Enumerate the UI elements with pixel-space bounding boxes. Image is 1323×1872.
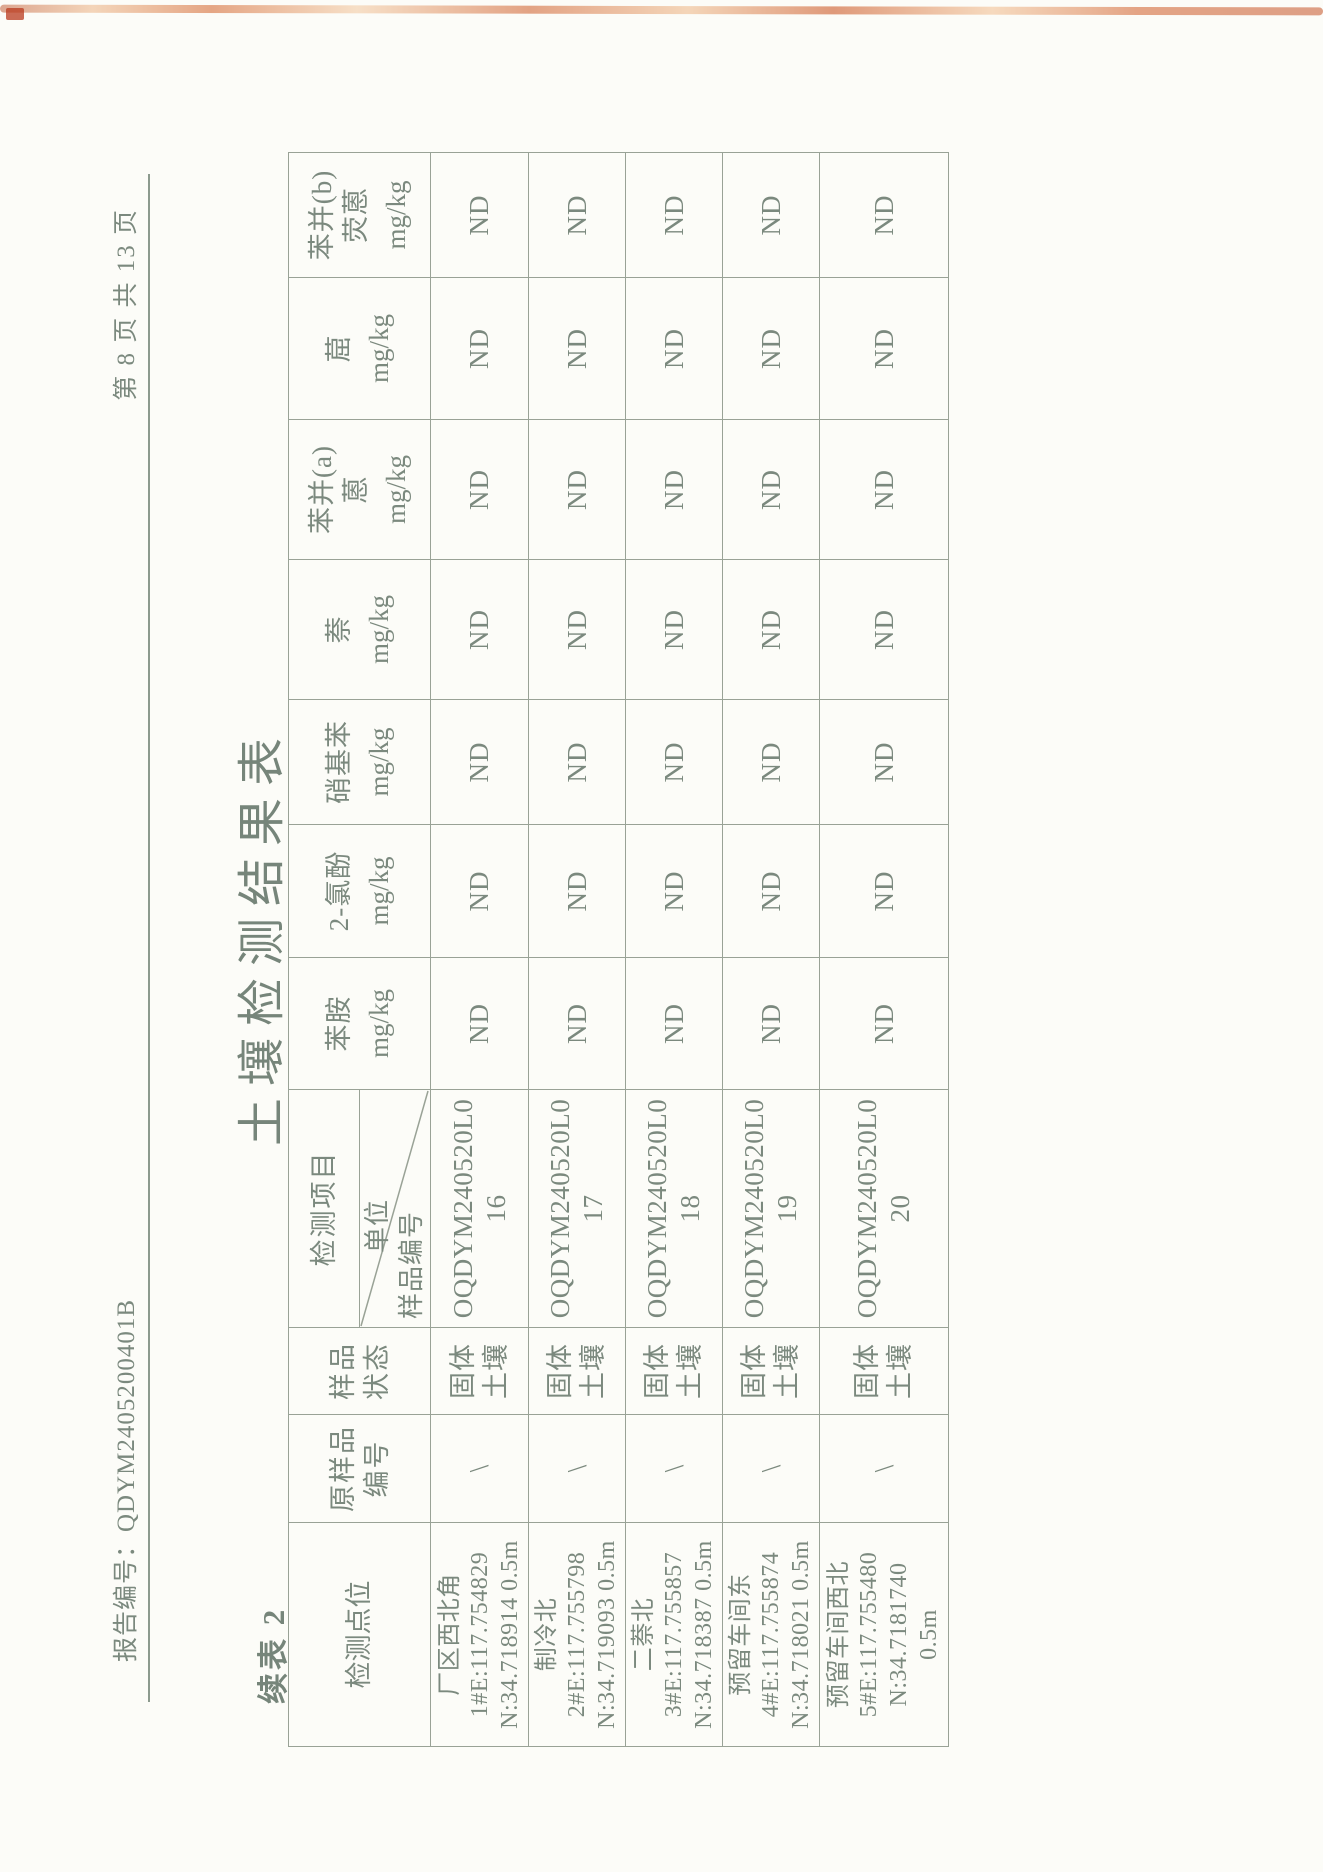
text-line: OQDYM240520L0 — [447, 1090, 480, 1327]
text-line: 18 — [674, 1090, 707, 1327]
table-row: 制冷北 2#E:117.755798 N:34.719093 0.5m \ 固体… — [529, 153, 626, 1747]
cell-value: ND — [723, 153, 820, 278]
unit-label: mg/kg — [373, 153, 421, 277]
text-line: 土壤 — [884, 1328, 917, 1414]
cell-point: 预留车间西北 5#E:117.755480 N:34.7181740 0.5m — [820, 1523, 949, 1747]
text-line: OQDYM240520L0 — [544, 1090, 577, 1327]
cell-value: ND — [626, 958, 723, 1090]
cell-value: ND — [626, 278, 723, 420]
cell-point: 二萘北 3#E:117.755857 N:34.718387 0.5m — [626, 1523, 723, 1747]
unit-label: mg/kg — [373, 420, 421, 559]
text-line: 17 — [577, 1090, 610, 1327]
cell-sample-state: 固体 土壤 — [723, 1328, 820, 1415]
corner-diagonal-area: 单位 样品编号 — [360, 1090, 429, 1327]
text-line: 状态 — [360, 1328, 394, 1414]
cell-value: ND — [626, 560, 723, 700]
scanned-report-page: 报告编号：QDYM2405200401B 第 8 页 共 13 页 土壤检测结果… — [0, 0, 1323, 1872]
text-line: OQDYM240520L0 — [738, 1090, 771, 1327]
col-header-state: 样品 状态 — [289, 1328, 431, 1415]
cell-value: ND — [529, 153, 626, 278]
cell-value: ND — [723, 825, 820, 958]
cell-value: ND — [431, 278, 529, 420]
col-header-2-chlorophenol: 2-氯酚 mg/kg — [289, 825, 431, 958]
cell-sample-state: 固体 土壤 — [529, 1328, 626, 1415]
cell-value: ND — [723, 560, 820, 700]
text-line: 厂区西北角 — [435, 1523, 465, 1746]
table-header-row: 检测点位 原样品 编号 样品 状态 检测项目 — [289, 153, 431, 1747]
text-line: 固体 — [851, 1328, 884, 1414]
text-line: 土壤 — [480, 1328, 513, 1414]
cell-value: ND — [820, 825, 949, 958]
cell-orig-sample-no: \ — [820, 1415, 949, 1523]
unit-label: mg/kg — [356, 278, 404, 419]
cell-value: ND — [529, 420, 626, 560]
text-line: 萘 — [322, 560, 356, 699]
text-line: 硝基苯 — [322, 700, 356, 824]
cell-value: ND — [529, 278, 626, 420]
text-line: 4#E:117.755874 — [756, 1523, 786, 1746]
cell-sample-id: OQDYM240520L0 18 — [626, 1090, 723, 1328]
cell-point: 预留车间东 4#E:117.755874 N:34.718021 0.5m — [723, 1523, 820, 1747]
text-line: 土壤 — [674, 1328, 707, 1414]
cell-sample-state: 固体 土壤 — [431, 1328, 529, 1415]
text-line: 样品 — [326, 1328, 360, 1414]
text-line: 固体 — [447, 1328, 480, 1414]
text-line: 苯胺 — [322, 958, 356, 1089]
text-line: OQDYM240520L0 — [851, 1090, 884, 1327]
text-line: 䓛 — [322, 278, 356, 419]
text-line: 土壤 — [577, 1328, 610, 1414]
text-line: 苯并(a) — [305, 420, 339, 559]
text-line: 二萘北 — [629, 1523, 659, 1746]
cell-value: ND — [723, 700, 820, 825]
cell-orig-sample-no: \ — [431, 1415, 529, 1523]
cell-value: ND — [431, 958, 529, 1090]
cell-sample-id: OQDYM240520L0 16 — [431, 1090, 529, 1328]
cell-value: ND — [723, 420, 820, 560]
rotated-page-content: 报告编号：QDYM2405200401B 第 8 页 共 13 页 土壤检测结果… — [0, 0, 1323, 1872]
text-line: 1#E:117.754829 — [465, 1523, 495, 1746]
text-line: 编号 — [360, 1415, 394, 1522]
col-header-chrysene: 䓛 mg/kg — [289, 278, 431, 420]
text-line: OQDYM240520L0 — [641, 1090, 674, 1327]
corner-sample-no-label: 样品编号 — [397, 1211, 427, 1319]
corner-project-label: 检测项目 — [290, 1090, 360, 1327]
text-line: 固体 — [544, 1328, 577, 1414]
unit-label: mg/kg — [356, 825, 404, 957]
text-line: 预留车间东 — [726, 1523, 756, 1746]
text-line: N:34.719093 0.5m — [592, 1523, 622, 1746]
table-row: 厂区西北角 1#E:117.754829 N:34.718914 0.5m \ … — [431, 153, 529, 1747]
cell-value: ND — [431, 825, 529, 958]
text-line: 固体 — [738, 1328, 771, 1414]
text-line: 制冷北 — [532, 1523, 562, 1746]
text-line: 2-氯酚 — [322, 825, 356, 957]
cell-value: ND — [723, 278, 820, 420]
text-line: 固体 — [641, 1328, 674, 1414]
cell-value: ND — [529, 700, 626, 825]
cell-value: ND — [529, 825, 626, 958]
table-row: 二萘北 3#E:117.755857 N:34.718387 0.5m \ 固体… — [626, 153, 723, 1747]
cell-point: 厂区西北角 1#E:117.754829 N:34.718914 0.5m — [431, 1523, 529, 1747]
cell-value: ND — [431, 560, 529, 700]
text-line: 5#E:117.755480 — [854, 1523, 884, 1746]
text-line: 20 — [884, 1090, 917, 1327]
cell-sample-id: OQDYM240520L0 19 — [723, 1090, 820, 1328]
col-header-orig-sample: 原样品 编号 — [289, 1415, 431, 1523]
col-header-benzo-b-fluoranthene: 苯并(b) 荧蒽 mg/kg — [289, 153, 431, 278]
cell-value: ND — [626, 825, 723, 958]
cell-value: ND — [723, 958, 820, 1090]
text-line: N:34.718914 0.5m — [495, 1523, 525, 1746]
unit-label: mg/kg — [356, 958, 404, 1089]
cell-orig-sample-no: \ — [626, 1415, 723, 1523]
cell-value: ND — [626, 420, 723, 560]
page-title: 土壤检测结果表 — [222, 0, 292, 1872]
header-divider-line — [148, 174, 150, 1702]
text-line: 3#E:117.755857 — [659, 1523, 689, 1746]
text-line: 蒽 — [339, 420, 373, 559]
unit-label: mg/kg — [356, 560, 404, 699]
page-indicator: 第 8 页 共 13 页 — [106, 208, 142, 401]
cell-value: ND — [820, 278, 949, 420]
continuation-label: 续表 2 — [248, 1607, 293, 1704]
cell-value: ND — [820, 700, 949, 825]
text-line: 16 — [480, 1090, 513, 1327]
report-number: 报告编号：QDYM2405200401B — [106, 1299, 142, 1662]
cell-value: ND — [820, 153, 949, 278]
col-header-project-diagonal: 检测项目 单位 样品编号 — [289, 1090, 431, 1328]
cell-sample-state: 固体 土壤 — [820, 1328, 949, 1415]
cell-value: ND — [626, 700, 723, 825]
text-line: N:34.718021 0.5m — [786, 1523, 816, 1746]
col-header-point: 检测点位 — [289, 1523, 431, 1747]
text-line: 土壤 — [771, 1328, 804, 1414]
cell-orig-sample-no: \ — [723, 1415, 820, 1523]
text-line: N:34.7181740 — [884, 1523, 914, 1746]
corner-unit-label: 单位 — [363, 1199, 393, 1253]
unit-label: mg/kg — [356, 700, 404, 824]
cell-sample-id: OQDYM240520L0 17 — [529, 1090, 626, 1328]
cell-orig-sample-no: \ — [529, 1415, 626, 1523]
cell-sample-id: OQDYM240520L0 20 — [820, 1090, 949, 1328]
cell-value: ND — [529, 958, 626, 1090]
text-line: 0.5m — [914, 1523, 944, 1746]
cell-value: ND — [626, 153, 723, 278]
text-line: 预留车间西北 — [824, 1523, 854, 1746]
results-table: 检测点位 原样品 编号 样品 状态 检测项目 — [288, 152, 949, 1747]
cell-value: ND — [820, 420, 949, 560]
text-line: 原样品 — [326, 1415, 360, 1522]
col-header-aniline: 苯胺 mg/kg — [289, 958, 431, 1090]
text-line: N:34.718387 0.5m — [689, 1523, 719, 1746]
col-header-naphthalene: 萘 mg/kg — [289, 560, 431, 700]
cell-value: ND — [431, 153, 529, 278]
text-line: 19 — [771, 1090, 804, 1327]
cell-value: ND — [431, 420, 529, 560]
cell-value: ND — [820, 958, 949, 1090]
col-header-nitrobenzene: 硝基苯 mg/kg — [289, 700, 431, 825]
cell-point: 制冷北 2#E:117.755798 N:34.719093 0.5m — [529, 1523, 626, 1747]
col-header-benzo-a-anthracene: 苯并(a) 蒽 mg/kg — [289, 420, 431, 560]
cell-value: ND — [431, 700, 529, 825]
text-line: 2#E:117.755798 — [562, 1523, 592, 1746]
cell-value: ND — [820, 560, 949, 700]
text-line: 苯并(b) — [305, 153, 339, 277]
table-row: 预留车间西北 5#E:117.755480 N:34.7181740 0.5m … — [820, 153, 949, 1747]
cell-value: ND — [529, 560, 626, 700]
table-row: 预留车间东 4#E:117.755874 N:34.718021 0.5m \ … — [723, 153, 820, 1747]
cell-sample-state: 固体 土壤 — [626, 1328, 723, 1415]
text-line: 荧蒽 — [339, 153, 373, 277]
